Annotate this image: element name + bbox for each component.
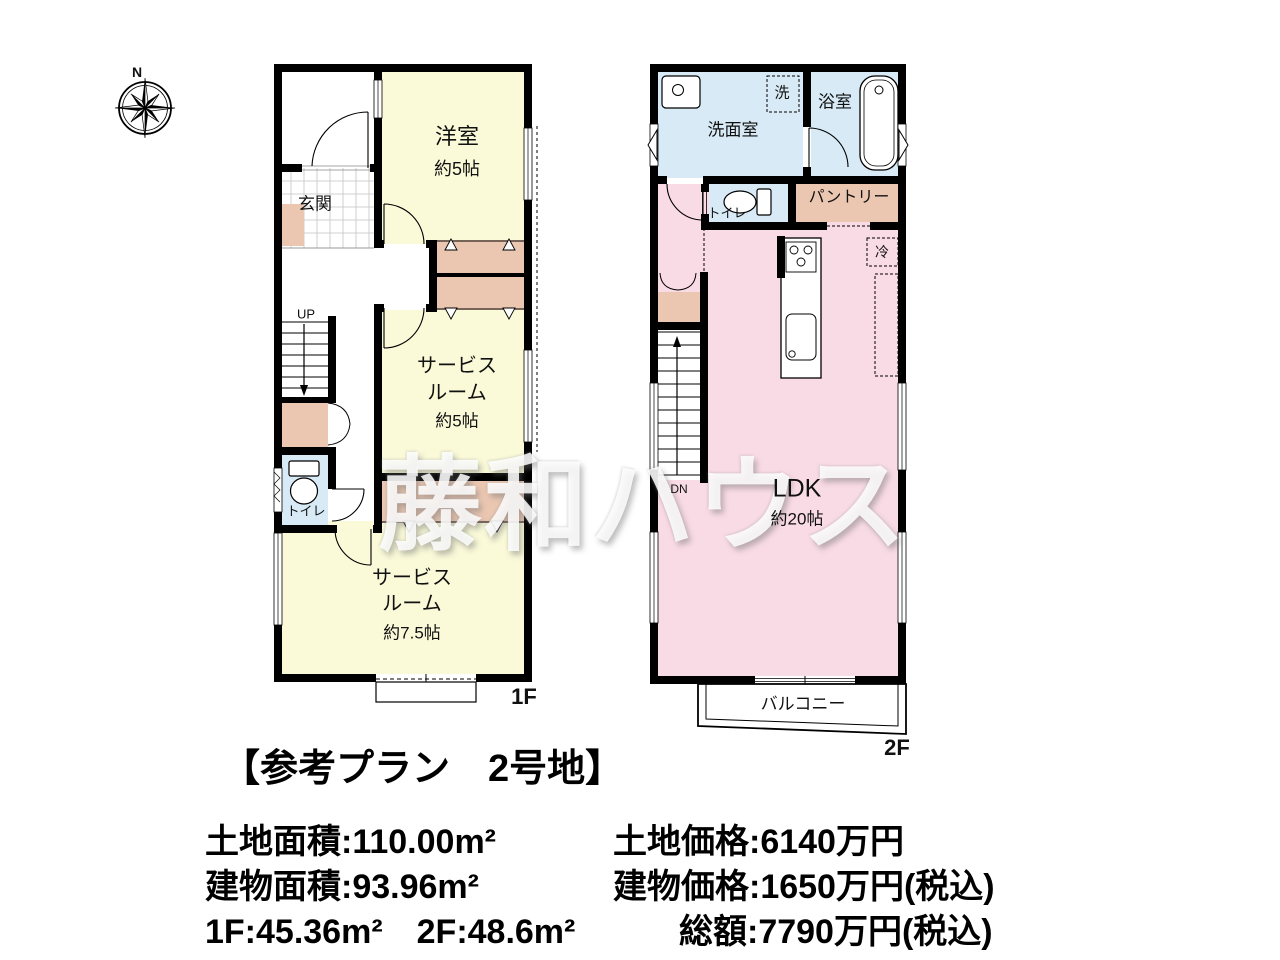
room-label-toilet-1f: トイレ [286,505,325,518]
label-refrigerator: 冷 [875,245,889,259]
compass-north-label: N [132,65,142,79]
room-size-ldk: 約20帖 [771,511,824,528]
room-size-service-room5: 約5帖 [435,413,478,430]
room-label-balcony: バルコニー [761,696,846,713]
building-price-text: 建物価格:1650万円(税込) [613,859,995,908]
room-label-ldk: LDK [773,477,822,502]
room-label-service-room5-1: サービス [417,356,497,376]
room-label-western-room: 洋室 [435,126,479,148]
label-washer: 洗 [774,86,789,101]
room-label-entrance: 玄関 [298,196,332,213]
compass-star-black [115,78,175,138]
total-price-text: 総額:7790万円(税込) [679,904,993,953]
stairs-1f [282,322,328,396]
floorplan-page: N [0,0,1280,960]
land-area-text: 土地面積:110.00m² [205,814,496,863]
stairs-label-up: UP [297,308,315,321]
plan-title: 【参考プラン 2号地】 [222,737,623,792]
floor-label-2f: 2F [884,737,910,759]
floor-label-1f: 1F [511,686,537,708]
floorplan-2f-drawing [645,60,920,760]
bathtub-icon [860,76,898,170]
room-label-service-room75-1: サービス [372,568,452,588]
balcony-door [755,676,855,684]
land-price-text: 土地価格:6140万円 [613,814,904,863]
room-label-service-room5-2: ルーム [427,383,486,403]
floor-areas-text: 1F:45.36m² 2F:48.6m² [205,904,575,953]
stairs-label-dn: DN [670,483,687,495]
room-label-pantry: パントリー [809,190,890,206]
building-area-text: 建物面積:93.96m² [205,859,479,908]
entrance-step [376,674,476,702]
room-size-service-room75: 約7.5帖 [383,625,441,642]
kitchen-counter [781,238,821,378]
room-label-bathroom: 浴室 [818,94,852,111]
toilet-icon-1f [289,461,319,504]
room-label-toilet-2f: トイレ [707,207,746,220]
room-label-washroom: 洗面室 [708,122,759,139]
compass-icon [105,68,185,148]
room-size-western-room: 約5帖 [434,160,480,178]
washstand-icon [662,76,700,108]
room-label-service-room75-2: ルーム [382,594,441,614]
